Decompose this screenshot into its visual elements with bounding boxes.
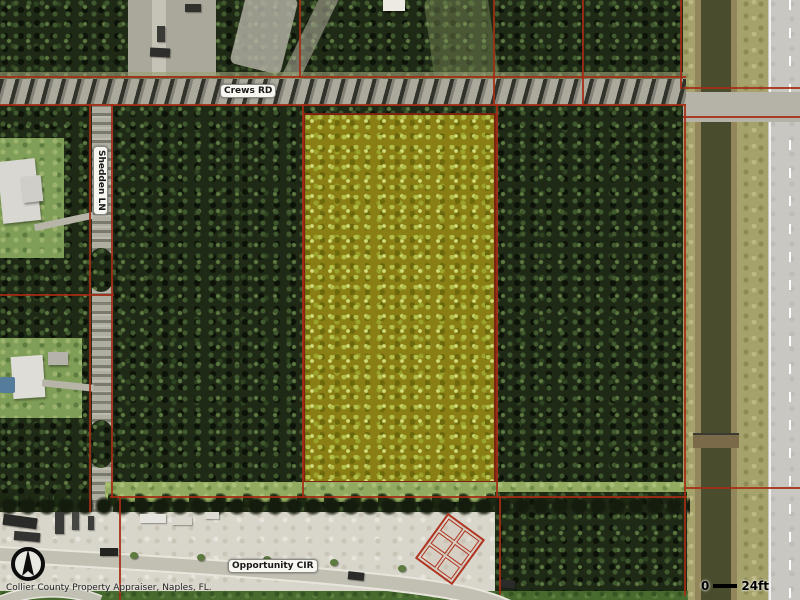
parcel-line [582, 0, 584, 106]
lane-dashes [789, 0, 791, 600]
parcel-line [302, 104, 304, 498]
trailer [172, 517, 192, 525]
highlighted-parcel [303, 113, 496, 483]
north-arrow-icon [10, 545, 46, 585]
scale-end: 24ft [741, 579, 769, 593]
bush [330, 559, 338, 566]
culvert [693, 433, 739, 448]
trailer [140, 514, 166, 523]
aerial-map[interactable]: Crews RD Shedden LN Opportunity CIR 0 24… [0, 0, 800, 600]
vehicle [55, 512, 64, 534]
bush [130, 552, 138, 559]
bush [197, 554, 205, 561]
parcel-line [683, 87, 800, 89]
parcel-line [299, 0, 301, 78]
road-label-opportunity-cir: Opportunity CIR [228, 559, 318, 573]
driveway-clearing [128, 0, 216, 76]
swimming-pool [0, 377, 15, 393]
scale-start: 0 [701, 579, 709, 593]
attribution: Collier County Property Appraiser, Naple… [6, 583, 212, 593]
road-edge-line [769, 0, 771, 600]
parcel-line [111, 104, 113, 498]
parcel-line [686, 487, 800, 489]
bush [398, 565, 406, 572]
parcel-line [680, 0, 682, 89]
house-roof [21, 175, 44, 203]
trailer [205, 512, 219, 519]
building-roof [383, 0, 405, 11]
parcel-line [496, 104, 498, 498]
scale-dash [713, 584, 737, 588]
vehicle [72, 512, 79, 530]
shed-roof [48, 352, 68, 365]
parcel-line [684, 104, 686, 596]
parcel-line [499, 496, 501, 595]
vehicle [88, 516, 94, 530]
parcel-line [683, 116, 800, 118]
vehicle [185, 4, 201, 12]
parcel-line [89, 104, 91, 512]
parcel-line [0, 294, 114, 296]
vehicle [100, 548, 118, 556]
canal [695, 0, 737, 600]
road-label-shedden-ln: Shedden LN [93, 146, 108, 215]
road-label-crews-rd: Crews RD [220, 84, 276, 98]
scale-bar: 0 24ft [701, 579, 769, 593]
vehicle [150, 47, 170, 57]
vehicle [348, 571, 365, 581]
vehicle [157, 26, 165, 42]
parcel-line [110, 496, 687, 498]
highway [768, 0, 800, 600]
house-roof [11, 355, 46, 399]
parcel-line [493, 0, 495, 106]
